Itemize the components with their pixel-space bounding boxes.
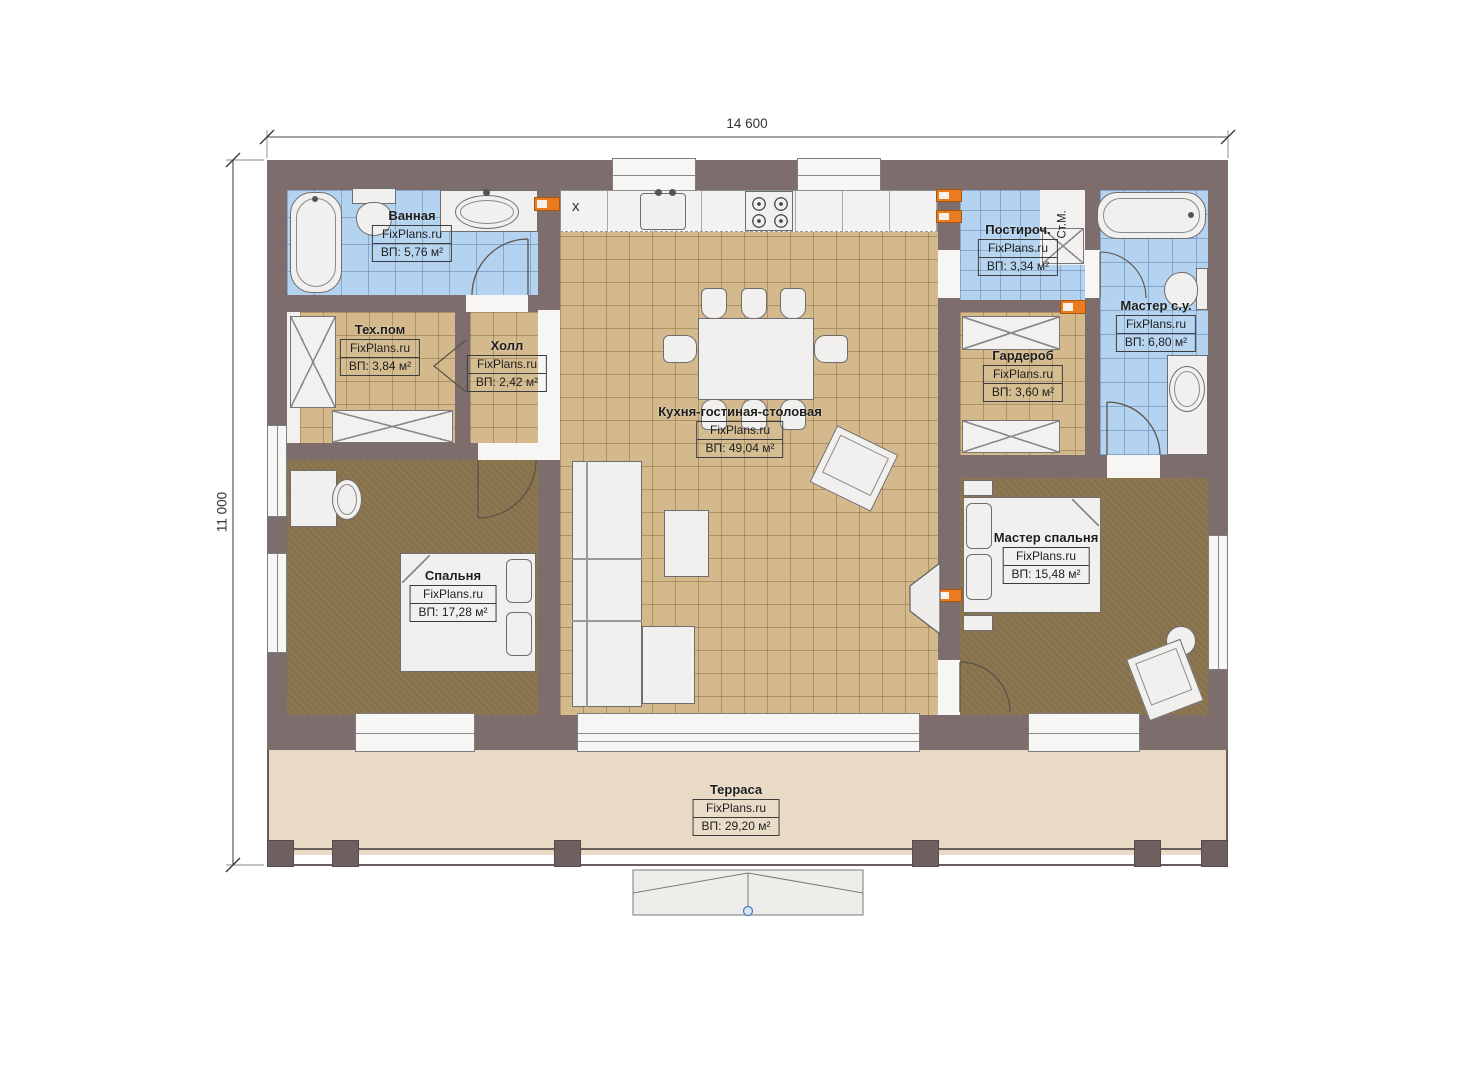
- room-watermark: FixPlans.ru: [468, 356, 546, 373]
- room-watermark: FixPlans.ru: [1117, 316, 1195, 333]
- plan-linework: [0, 0, 1474, 1080]
- room-name: Ванная: [372, 208, 452, 223]
- room-area: ВП: 6,80 м²: [1117, 333, 1195, 351]
- room-area: ВП: 3,84 м²: [341, 357, 419, 375]
- room-area: ВП: 15,48 м²: [1004, 565, 1089, 583]
- room-name: Постироч.: [978, 222, 1058, 237]
- room-watermark: FixPlans.ru: [979, 240, 1057, 257]
- room-name: Спальня: [410, 568, 497, 583]
- tv-unit: [910, 563, 940, 634]
- room-label-master-bath: Мастер с.у. FixPlans.ruВП: 6,80 м²: [1116, 298, 1196, 352]
- door-arc-bedroom: [478, 460, 536, 518]
- room-label-hall: Холл FixPlans.ruВП: 2,42 м²: [467, 338, 547, 392]
- room-label-bedroom: Спальня FixPlans.ruВП: 17,28 м²: [410, 568, 497, 622]
- room-name: Кухня-гостиная-столовая: [658, 404, 822, 419]
- survey-marker: [744, 907, 753, 916]
- dimension-height: 11 000: [215, 492, 230, 532]
- room-label-bathroom: Ванная FixPlans.ruВП: 5,76 м²: [372, 208, 452, 262]
- room-area: ВП: 29,20 м²: [694, 817, 779, 835]
- door-arc-bathroom: [472, 239, 528, 295]
- room-area: ВП: 17,28 м²: [411, 603, 496, 621]
- room-label-tech: Тех.пом FixPlans.ruВП: 3,84 м²: [340, 322, 420, 376]
- room-label-kitchen-living: Кухня-гостиная-столовая FixPlans.ruВП: 4…: [658, 404, 822, 458]
- room-name: Гардероб: [983, 348, 1063, 363]
- room-name: Мастер спальня: [994, 530, 1099, 545]
- room-name: Тех.пом: [340, 322, 420, 337]
- room-name: Холл: [467, 338, 547, 353]
- room-watermark: FixPlans.ru: [373, 226, 451, 243]
- room-area: ВП: 5,76 м²: [373, 243, 451, 261]
- room-watermark: FixPlans.ru: [341, 340, 419, 357]
- door-fold-tech: [434, 340, 466, 392]
- room-area: ВП: 2,42 м²: [468, 373, 546, 391]
- room-watermark: FixPlans.ru: [1004, 548, 1089, 565]
- room-watermark: FixPlans.ru: [984, 366, 1062, 383]
- room-area: ВП: 3,34 м²: [979, 257, 1057, 275]
- dim-ext-top: [267, 130, 1228, 158]
- door-arc-laundry: [1100, 252, 1146, 298]
- room-area: ВП: 3,60 м²: [984, 383, 1062, 401]
- dimension-width: 14 600: [726, 116, 767, 131]
- room-label-wardrobe: Гардероб FixPlans.ruВП: 3,60 м²: [983, 348, 1063, 402]
- floor-plan-canvas: x Ст.М.: [0, 0, 1474, 1080]
- room-label-master-bedroom: Мастер спальня FixPlans.ruВП: 15,48 м²: [994, 530, 1099, 584]
- door-arc-masterbedroom: [960, 662, 1010, 712]
- room-area: ВП: 49,04 м²: [698, 439, 783, 457]
- room-name: Терраса: [693, 782, 780, 797]
- room-watermark: FixPlans.ru: [698, 422, 783, 439]
- room-name: Мастер с.у.: [1116, 298, 1196, 313]
- room-label-laundry: Постироч. FixPlans.ruВП: 3,34 м²: [978, 222, 1058, 276]
- room-watermark: FixPlans.ru: [411, 586, 496, 603]
- door-arc-masterbath: [1107, 402, 1160, 455]
- room-label-terrace: Терраса FixPlans.ruВП: 29,20 м²: [693, 782, 780, 836]
- room-watermark: FixPlans.ru: [694, 800, 779, 817]
- dim-ext-left: [226, 160, 264, 865]
